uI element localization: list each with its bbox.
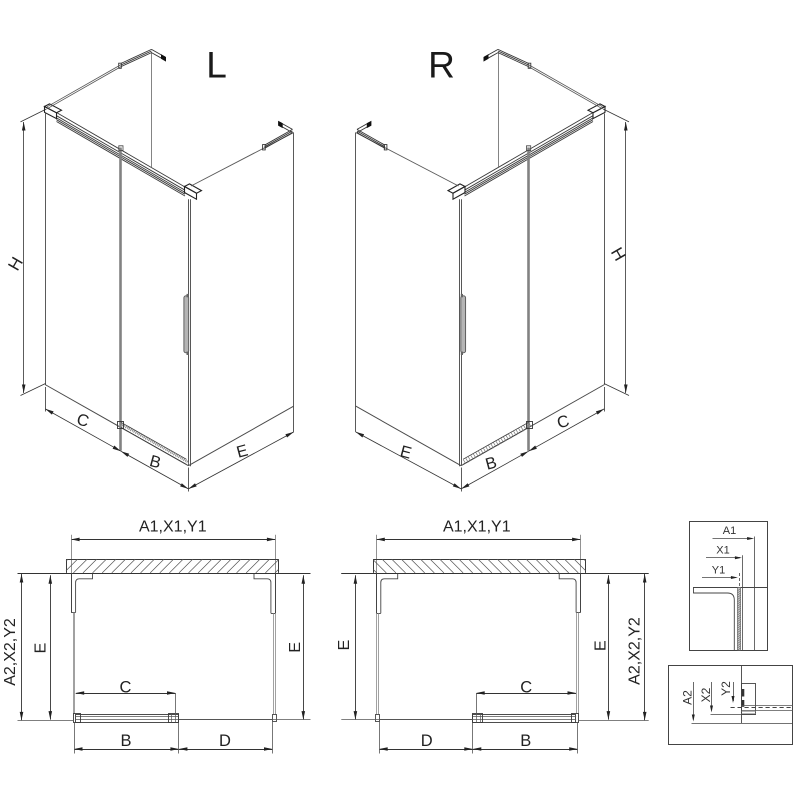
svg-text:A2: A2 xyxy=(680,690,694,705)
svg-text:A2,X2,Y2: A2,X2,Y2 xyxy=(2,618,19,686)
svg-text:C: C xyxy=(520,678,532,696)
svg-text:B: B xyxy=(520,732,531,750)
svg-text:D: D xyxy=(421,732,433,750)
svg-text:A1,X1,Y1: A1,X1,Y1 xyxy=(443,519,511,536)
svg-text:E: E xyxy=(287,642,304,653)
svg-text:E: E xyxy=(336,640,353,651)
svg-text:C: C xyxy=(120,678,132,696)
svg-text:A1: A1 xyxy=(723,525,736,537)
svg-text:B: B xyxy=(120,732,131,750)
svg-text:D: D xyxy=(219,732,231,750)
svg-text:A1,X1,Y1: A1,X1,Y1 xyxy=(139,519,207,536)
svg-text:A2,X2,Y2: A2,X2,Y2 xyxy=(626,617,643,685)
svg-text:Y1: Y1 xyxy=(712,564,725,576)
svg-text:E: E xyxy=(593,640,610,651)
svg-text:Y2: Y2 xyxy=(719,681,733,696)
svg-text:X1: X1 xyxy=(716,545,729,557)
svg-text:R: R xyxy=(428,45,455,86)
svg-text:E: E xyxy=(33,643,50,654)
svg-text:L: L xyxy=(206,45,227,86)
